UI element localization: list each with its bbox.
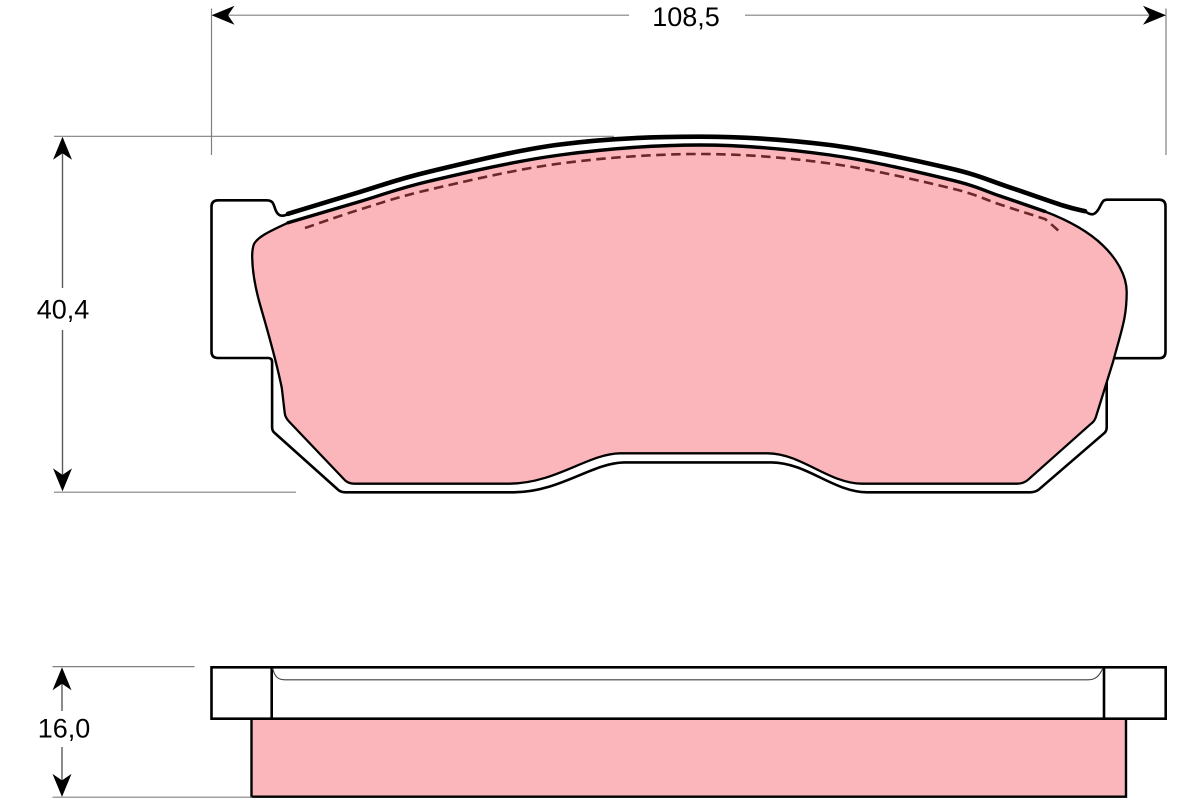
svg-text:108,5: 108,5 (652, 2, 720, 32)
svg-text:16,0: 16,0 (38, 713, 91, 743)
svg-text:40,4: 40,4 (37, 295, 90, 325)
